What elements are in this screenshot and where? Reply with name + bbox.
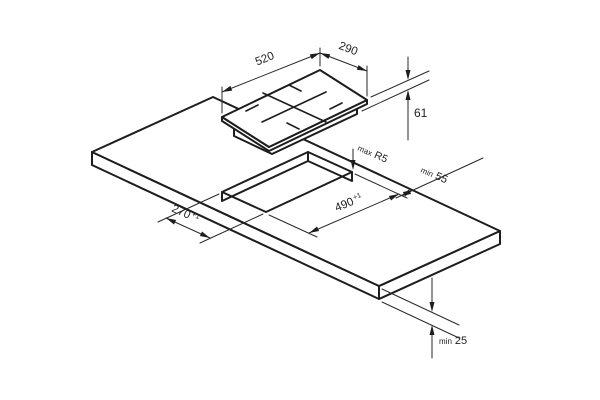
dim-label-worktop-thickness: min25 bbox=[439, 335, 467, 347]
installation-diagram: 490+1 270+1 maxR5 bbox=[0, 0, 600, 400]
arrowhead bbox=[319, 51, 330, 59]
arrowhead bbox=[406, 70, 411, 80]
dim-label-hob-width: 520 bbox=[254, 50, 276, 68]
arrowhead bbox=[310, 51, 321, 59]
dim-hob-height: 61 bbox=[362, 57, 429, 140]
arrowhead bbox=[221, 86, 232, 94]
dim-label-hob-depth: 290 bbox=[337, 40, 359, 58]
dim-label-hob-height: 61 bbox=[414, 106, 428, 120]
arrowhead bbox=[430, 302, 435, 312]
arrowhead bbox=[406, 90, 411, 100]
dim-label-corner-radius: maxR5 bbox=[356, 142, 390, 166]
dim-rear-clearance: min55 bbox=[396, 158, 483, 198]
hob bbox=[222, 70, 367, 154]
dim-label-rear-clearance: min55 bbox=[419, 164, 450, 186]
arrowhead bbox=[357, 65, 368, 73]
arrowhead bbox=[165, 216, 176, 225]
